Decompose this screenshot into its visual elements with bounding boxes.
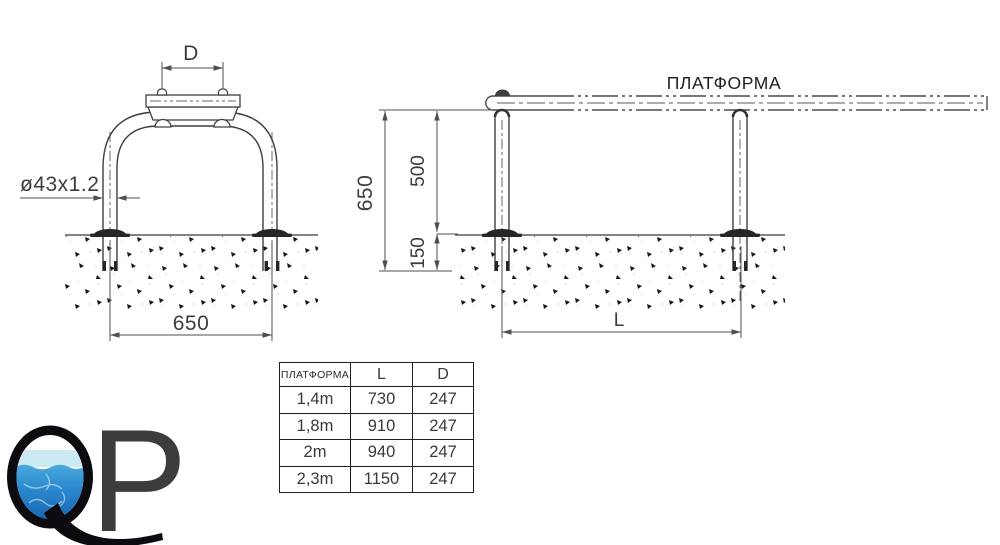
front-view: D ø43x1.2 650 bbox=[20, 42, 318, 341]
pipe-spec-label: ø43x1.2 bbox=[20, 173, 99, 196]
cell-d: 247 bbox=[413, 413, 474, 440]
cell-l: 1150 bbox=[351, 466, 413, 493]
header-d: D bbox=[413, 363, 474, 387]
cell-d: 247 bbox=[413, 387, 474, 414]
cell-l: 910 bbox=[351, 413, 413, 440]
dim-label-150: 150 bbox=[408, 237, 429, 269]
logo-letter-p: P bbox=[90, 399, 187, 545]
cell-platform: 1,4m bbox=[280, 387, 351, 414]
dim-label-d: D bbox=[183, 42, 199, 65]
header-l: L bbox=[351, 363, 413, 387]
header-platform: ПЛАТФОРМА bbox=[280, 363, 351, 387]
side-view: ПЛАТФОРМА 650 500 150 bbox=[354, 73, 987, 338]
cell-d: 247 bbox=[413, 440, 474, 467]
spec-table: ПЛАТФОРМА L D 1,4m 730 247 1,8m 910 247 … bbox=[279, 362, 474, 493]
mount-assembly bbox=[146, 89, 240, 127]
cell-platform: 2m bbox=[280, 440, 351, 467]
table-row: 1,4m 730 247 bbox=[280, 387, 474, 414]
cell-l: 940 bbox=[351, 440, 413, 467]
side-ground-hatch bbox=[455, 236, 785, 310]
technical-drawing: D ø43x1.2 650 bbox=[0, 0, 1000, 545]
dim-label-500: 500 bbox=[408, 155, 429, 187]
dim-d: D bbox=[162, 42, 223, 88]
table-row: 2m 940 247 bbox=[280, 440, 474, 467]
cell-d: 247 bbox=[413, 466, 474, 493]
plate-bolt-left bbox=[158, 89, 167, 95]
drawing-canvas: D ø43x1.2 650 bbox=[0, 0, 1000, 545]
dim-label-l: L bbox=[614, 310, 625, 331]
logo-qp: P bbox=[7, 399, 187, 545]
cell-platform: 2,3m bbox=[280, 466, 351, 493]
cell-platform: 1,8m bbox=[280, 413, 351, 440]
platform-top-bolt bbox=[495, 90, 510, 96]
plate-bolt-right bbox=[219, 89, 228, 95]
table-row: 2,3m 1150 247 bbox=[280, 466, 474, 493]
dim-label-650-front: 650 bbox=[173, 312, 210, 335]
table-row: 1,8m 910 247 bbox=[280, 413, 474, 440]
spec-table-header: ПЛАТФОРМА L D bbox=[280, 363, 474, 387]
dim-pipe-spec: ø43x1.2 bbox=[20, 173, 140, 201]
cell-l: 730 bbox=[351, 387, 413, 414]
platform-label: ПЛАТФОРМА bbox=[667, 73, 782, 93]
dim-label-650-side: 650 bbox=[354, 175, 377, 212]
